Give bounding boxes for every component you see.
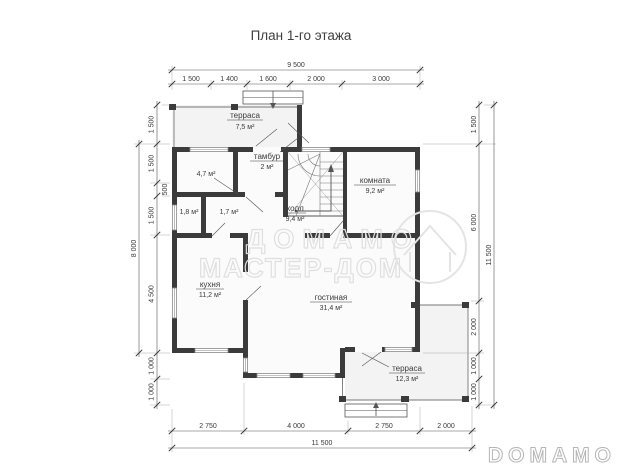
dim-top-3: 1 600 (259, 76, 277, 83)
dim-left-1: 1 500 (149, 116, 156, 134)
dim-left-7: 1 000 (149, 383, 156, 401)
dim-top-5: 3 000 (372, 76, 390, 83)
floor-plan-page: План 1-го этажа (0, 0, 627, 470)
room-label-hall: холл (286, 204, 304, 213)
window (172, 205, 176, 230)
dim-top-1: 1 500 (182, 76, 200, 83)
room-label-terrace-top: терраса (230, 111, 260, 120)
brand-logo: DOMAMO (488, 444, 616, 467)
window (243, 358, 247, 372)
room-label-living: гостиная (315, 293, 348, 302)
dim-bottom-4: 2 000 (437, 423, 455, 430)
room-label-bedroom: комната (360, 176, 391, 185)
room-area-terrace-bottom: 12,3 м² (396, 376, 419, 383)
room-area-living: 31,4 м² (320, 305, 343, 312)
room-area-47: 4,7 м² (197, 171, 216, 178)
dim-top-total: 9 500 (287, 62, 305, 69)
window (302, 147, 330, 151)
dim-left-2: 1 500 (149, 155, 156, 173)
room-area-17: 1,7 м² (220, 209, 239, 216)
room-label-tambour: тамбур (254, 152, 281, 161)
room-area-bedroom: 9,2 м² (366, 188, 385, 195)
dim-bottom-2: 4 000 (287, 423, 305, 430)
dim-bottom-total: 11 500 (312, 440, 333, 447)
dim-left-5: 4 500 (149, 285, 156, 303)
dim-right-4: 1 000 (471, 357, 478, 375)
dim-top-2: 1 400 (220, 76, 238, 83)
room-area-kitchen: 11,2 м² (199, 292, 222, 299)
room-label-kitchen: кухня (200, 280, 220, 289)
dim-right-total: 11 500 (486, 244, 493, 265)
dim-left-6: 1 000 (149, 357, 156, 375)
window (385, 347, 412, 351)
entry-steps-bottom (345, 402, 407, 417)
dim-bottom-3: 2 750 (375, 423, 393, 430)
dim-right-2: 6 000 (471, 214, 478, 232)
floor-plan-drawing: План 1-го этажа (0, 0, 627, 470)
page-title: План 1-го этажа (251, 28, 352, 43)
watermark-line1: ДОМАМО (246, 224, 420, 254)
watermark-line2: МАСТЕР-ДОМ (199, 253, 403, 283)
dim-left-3: 500 (162, 184, 169, 196)
dim-right-5: 1 000 (471, 383, 478, 401)
room-label-terrace-bottom: терраса (392, 364, 422, 373)
dim-left-4: 1 500 (149, 207, 156, 225)
window (257, 373, 290, 377)
dim-right-3: 2 000 (471, 318, 478, 336)
room-area-tambour: 2 м² (261, 164, 275, 171)
dim-bottom-1: 2 750 (199, 423, 217, 430)
room-area-hall: 9,4 м² (286, 216, 305, 223)
dim-left-outer: 8 000 (131, 240, 138, 258)
window (195, 348, 228, 352)
window (172, 288, 176, 318)
dim-top-4: 2 000 (307, 76, 325, 83)
room-area-18: 1,8 м² (180, 209, 199, 216)
dim-right-1: 1 500 (471, 116, 478, 134)
room-area-terrace-top: 7,5 м² (236, 124, 255, 131)
window (190, 147, 228, 151)
window (303, 373, 335, 377)
window (415, 170, 419, 192)
